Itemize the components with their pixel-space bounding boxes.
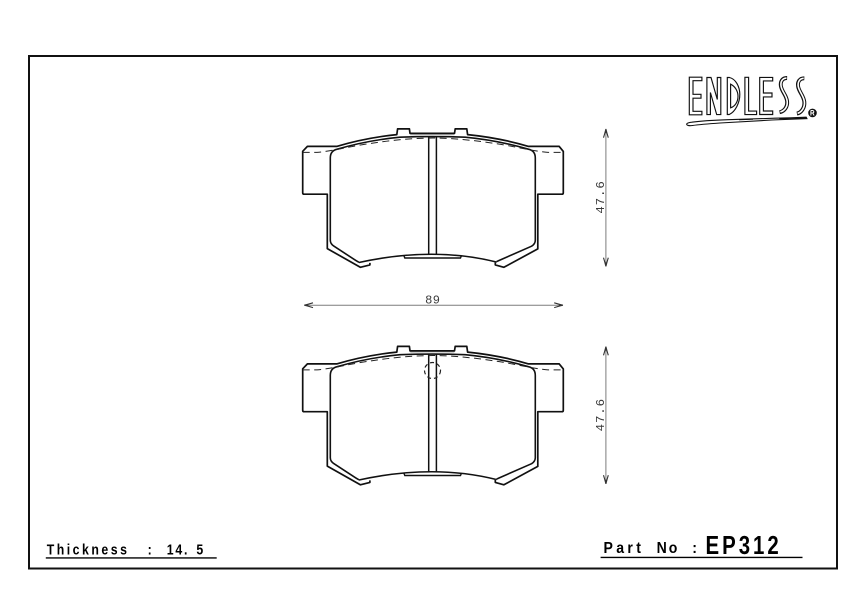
svg-text:47.6: 47.6: [594, 398, 608, 431]
svg-text::: :: [692, 539, 697, 557]
svg-text:47.6: 47.6: [594, 180, 608, 213]
svg-text:14.: 14.: [167, 541, 190, 557]
svg-text:Part: Part: [604, 539, 645, 557]
svg-text:5: 5: [196, 541, 203, 557]
svg-text:EP312: EP312: [706, 531, 782, 560]
svg-text:89: 89: [425, 293, 440, 307]
svg-text:No: No: [657, 539, 680, 557]
svg-text:Thickness: Thickness: [47, 541, 130, 557]
svg-text::: :: [148, 541, 152, 557]
